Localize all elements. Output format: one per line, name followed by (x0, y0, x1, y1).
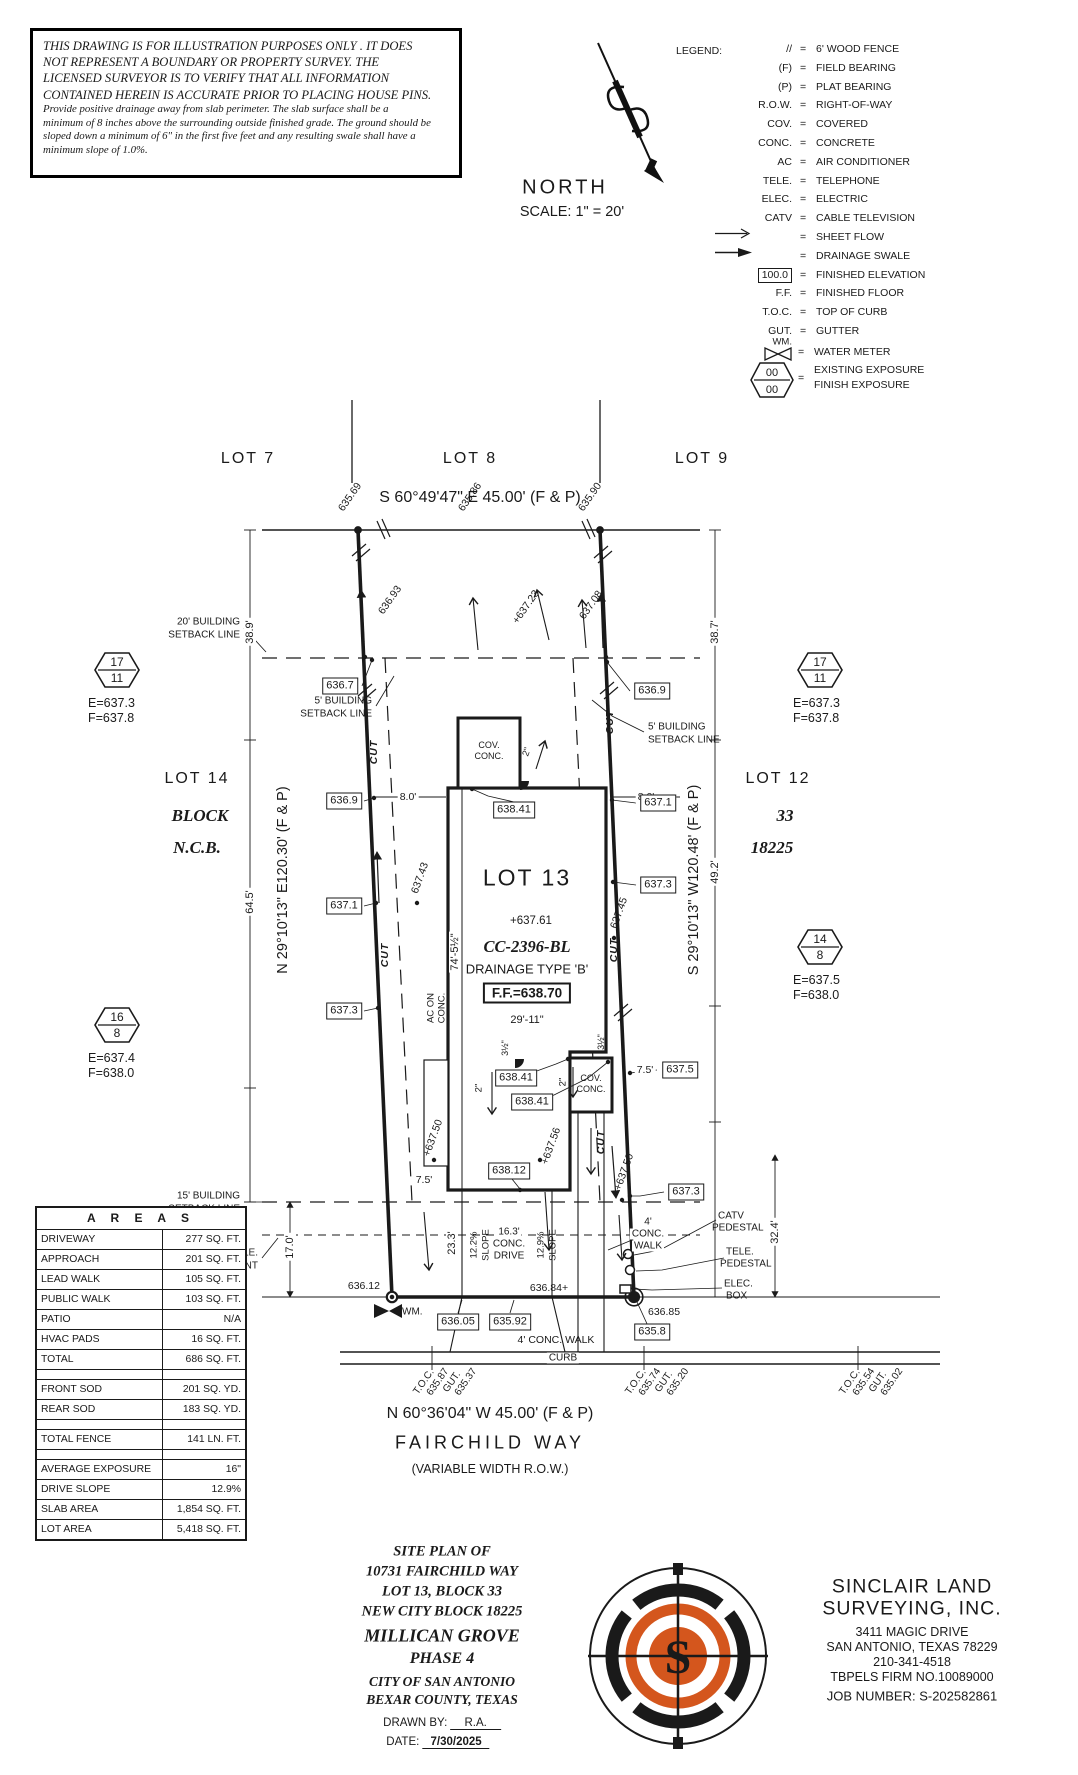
bearing-left: N 29°10'13" E120.30' (F & P) (275, 786, 291, 973)
legend-row: COV.=COVERED (714, 115, 1070, 134)
firm-address2: SAN ANTONIO, TEXAS 78229 (826, 1640, 997, 1654)
elevation-box: 637.1 (326, 898, 362, 915)
exposure-bottom-value: 00 (766, 384, 778, 396)
cov-conc-front-label2: CONC. (577, 1084, 606, 1094)
legend-exposure-desc2: FINISH EXPOSURE (814, 379, 910, 391)
legend-eq: = (800, 322, 806, 341)
tele-pedestal-symbol (626, 1266, 635, 1275)
areas-gap-row (37, 1450, 245, 1460)
legend-symbol: AC (714, 153, 792, 172)
legend-symbol: R.O.W. (714, 96, 792, 115)
legend-row: 100.0=FINISHED ELEVATION (714, 266, 1070, 285)
areas-row-value: 12.9% (163, 1480, 245, 1499)
areas-row-value: 201 SQ. YD. (163, 1380, 245, 1399)
legend-symbol: TELE. (714, 172, 792, 191)
slope-right-label: SLOPE (548, 1229, 559, 1261)
legend-symbol: (P) (714, 78, 792, 97)
dim-74-5: 74'-5½" (449, 931, 461, 972)
legend-symbol: F.F. (714, 284, 792, 303)
titleblock-line: NEW CITY BLOCK 18225 (362, 1604, 523, 1621)
catv-pedestal-label1: CATV (718, 1211, 744, 1222)
areas-row-label: HVAC PADS (37, 1330, 163, 1349)
legend-eq: = (798, 346, 804, 358)
areas-row-value: 16" (163, 1460, 245, 1479)
areas-gap-row (37, 1370, 245, 1380)
areas-row-label: REAR SOD (37, 1400, 163, 1419)
legend-row: CONC.=CONCRETE (714, 134, 1070, 153)
drainage-note-line: sloped down a minimum of 6" in the first… (43, 130, 449, 144)
drive-dim: 16.3' (496, 1227, 521, 1238)
subdivision-name: MILLICAN GROVE (364, 1626, 520, 1647)
areas-row: DRIVEWAY277 SQ. FT. (37, 1230, 245, 1250)
finish-exposure-value: F=638.0 (793, 988, 839, 1002)
legend-description: DRAINAGE SWALE (816, 247, 910, 266)
setback20-label2: SETBACK LINE (168, 630, 240, 641)
areas-row-label: LEAD WALK (37, 1270, 163, 1289)
areas-row-label: SLAB AREA (37, 1500, 163, 1519)
legend-wm-desc: WATER METER (814, 346, 890, 358)
exposure-top-value: 00 (766, 367, 778, 379)
dim-38-9: 38.9' (244, 618, 256, 646)
legend-description: RIGHT-OF-WAY (816, 96, 892, 115)
marker-value: 11 (814, 671, 826, 685)
lot12-label: LOT 12 (745, 770, 810, 788)
dim-29-11: 29'-11" (508, 1014, 545, 1026)
areas-row: PUBLIC WALK103 SQ. FT. (37, 1290, 245, 1310)
areas-row: HVAC PADS16 SQ. FT. (37, 1330, 245, 1350)
legend-symbol: (F) (714, 59, 792, 78)
legend-eq: = (800, 228, 806, 247)
elevation-box: 637.3 (668, 1184, 704, 1201)
elevation-box: 636.7 (322, 678, 358, 695)
wm-label: WM. (402, 1307, 423, 1318)
legend-description: AIR CONDITIONER (816, 153, 910, 172)
county-label: BEXAR COUNTY, TEXAS (366, 1692, 517, 1708)
areas-row-label: TOTAL (37, 1350, 163, 1369)
marker-value: 16 (110, 1010, 123, 1024)
legend-row: ELEC.=ELECTRIC (714, 190, 1070, 209)
curb-label: CURB (547, 1353, 579, 1364)
bearing-right: S 29°10'13" W120.48' (F & P) (686, 785, 702, 976)
legend-symbol: COV. (714, 115, 792, 134)
exposure-hexagon-icon: 00 00 (750, 362, 794, 398)
areas-row-value: 183 SQ. YD. (163, 1400, 245, 1419)
elevation-box: 635.8 (634, 1324, 670, 1341)
areas-row: TOTAL FENCE141 LN. FT. (37, 1430, 245, 1450)
areas-row-label: FRONT SOD (37, 1380, 163, 1399)
catv-pedestal-label2: PEDESTAL (712, 1223, 764, 1234)
legend-eq: = (800, 78, 806, 97)
disclaimer-box: THIS DRAWING IS FOR ILLUSTRATION PURPOSE… (30, 28, 462, 178)
drawn-by-label: DRAWN BY: (383, 1717, 447, 1729)
cov-conc-front-label1: COV. (580, 1073, 601, 1083)
scale-label: SCALE: 1" = 20' (520, 204, 624, 220)
firm-name-line1: SINCLAIR LAND (832, 1576, 992, 1599)
marker-value: 17 (110, 655, 123, 669)
curb (340, 1346, 940, 1370)
dim-8-0-left: 8.0' (398, 791, 419, 803)
disclaimer-line: NOT REPRESENT A BOUNDARY OR PROPERTY SUR… (43, 54, 449, 70)
areas-row-label: APPROACH (37, 1250, 163, 1269)
areas-table: A R E A S DRIVEWAY277 SQ. FT.APPROACH201… (35, 1206, 247, 1541)
drive-label2: DRIVE (492, 1251, 527, 1262)
spot-elevation: 636.12 (348, 1280, 380, 1292)
legend-row: R.O.W.=RIGHT-OF-WAY (714, 96, 1070, 115)
cov-conc-rear-label2: CONC. (475, 751, 504, 761)
legend-row: AC=AIR CONDITIONER (714, 153, 1070, 172)
legend-eq: = (800, 172, 806, 191)
legend-eq: = (800, 209, 806, 228)
legend-symbol: T.O.C. (714, 303, 792, 322)
drainage-note-line: minimum of 8 inches above the surroundin… (43, 117, 449, 131)
block-right-label: 33 (777, 806, 794, 826)
elevation-box: 638.41 (493, 802, 535, 819)
titleblock-line: LOT 13, BLOCK 33 (382, 1584, 502, 1601)
lot7-label: LOT 7 (221, 450, 275, 468)
cut-label: CUT (608, 938, 620, 963)
areas-row-value: 1,854 SQ. FT. (163, 1500, 245, 1519)
areas-row: PATION/A (37, 1310, 245, 1330)
sinclair-logo-icon: S (585, 1563, 771, 1749)
legend-eq: = (798, 372, 804, 384)
areas-row: LEAD WALK105 SQ. FT. (37, 1270, 245, 1290)
legend-eq: = (800, 303, 806, 322)
areas-row-value: 105 SQ. FT. (163, 1270, 245, 1289)
legend-exposure-desc1: EXISTING EXPOSURE (814, 364, 924, 376)
areas-row-value: 277 SQ. FT. (163, 1230, 245, 1249)
dim-7-5-left: 7.5' (414, 1174, 435, 1186)
ac-on-conc-label1: AC ON (426, 993, 437, 1023)
legend-row: F.F.=FINISHED FLOOR (714, 284, 1070, 303)
drainage-type-label: DRAINAGE TYPE 'B' (466, 962, 588, 977)
inch-label-2: 2" (474, 1084, 485, 1093)
phase-label: PHASE 4 (410, 1650, 474, 1668)
existing-exposure-value: E=637.4 (88, 1051, 135, 1065)
firm-name-line2: SURVEYING, INC. (822, 1598, 1001, 1621)
tele-pedestal-label2: PEDESTAL (720, 1259, 772, 1270)
legend-description: TOP OF CURB (816, 303, 887, 322)
areas-row: AVERAGE EXPOSURE16" (37, 1460, 245, 1480)
areas-row-label: DRIVEWAY (37, 1230, 163, 1249)
inch-label-3half: 3½" (596, 1034, 606, 1050)
elevation-box: 638.41 (495, 1070, 537, 1087)
plan-code-label: CC-2396-BL (483, 937, 570, 957)
walk-label-walk: WALK (632, 1241, 664, 1252)
areas-row: SLAB AREA1,854 SQ. FT. (37, 1500, 245, 1520)
areas-row: DRIVE SLOPE12.9% (37, 1480, 245, 1500)
water-meter-icon (764, 347, 792, 361)
legend-description: CONCRETE (816, 134, 875, 153)
legend-symbol: CATV (714, 209, 792, 228)
areas-row: LOT AREA5,418 SQ. FT. (37, 1520, 245, 1539)
titleblock-line: 10731 FAIRCHILD WAY (366, 1564, 518, 1581)
dim-38-7: 38.7' (709, 618, 721, 646)
marker-value: 17 (813, 655, 826, 669)
spot-elevation: 636.84+ (530, 1282, 568, 1294)
legend-eq: = (800, 59, 806, 78)
walk-label-4: 4' (642, 1217, 653, 1228)
lot14-label: LOT 14 (164, 770, 229, 788)
legend-symbol: // (714, 40, 792, 59)
date-label: DATE: (386, 1736, 419, 1748)
block-left-label: BLOCK (172, 806, 229, 826)
areas-row-label: LOT AREA (37, 1520, 163, 1539)
dim-32-4: 32.4' (769, 1218, 781, 1246)
finish-exposure-value: F=637.8 (88, 711, 134, 725)
slope-left-pct: 12.2% (469, 1232, 480, 1259)
legend-row: (F)=FIELD BEARING (714, 59, 1070, 78)
disclaimer-line: CONTAINED HEREIN IS ACCURATE PRIOR TO PL… (43, 87, 449, 103)
date-value: 7/30/2025 (423, 1736, 490, 1749)
finish-exposure-value: F=637.8 (793, 711, 839, 725)
elevation-box: 636.9 (634, 683, 670, 700)
legend-description: CABLE TELEVISION (816, 209, 915, 228)
areas-row-value: 201 SQ. FT. (163, 1250, 245, 1269)
legend-description: SHEET FLOW (816, 228, 884, 247)
drive-label1: CONC. (491, 1239, 527, 1250)
elec-box-label2: BOX (726, 1291, 747, 1302)
inch-label-2: 2" (558, 1078, 569, 1087)
cut-label: CUT (604, 710, 616, 735)
ac-on-conc-label2: CONC. (437, 993, 448, 1024)
slope-right-pct: 12.9% (536, 1232, 547, 1259)
dim-64-5: 64.5' (244, 888, 256, 916)
elevation-box: 637.3 (326, 1003, 362, 1020)
elevation-box: 637.3 (640, 877, 676, 894)
drawn-by-row: DRAWN BY: R.A. (383, 1717, 501, 1729)
legend-row: GUT.=GUTTER (714, 322, 1070, 341)
legend-eq: = (800, 134, 806, 153)
lot8-label: LOT 8 (443, 450, 497, 468)
public-walk-label: 4' CONC. WALK (518, 1334, 595, 1346)
legend-eq: = (800, 153, 806, 172)
areas-row-value: 5,418 SQ. FT. (163, 1520, 245, 1539)
legend-description: 6' WOOD FENCE (816, 40, 899, 59)
legend-eq: = (800, 284, 806, 303)
spot-elevation: 636.85 (648, 1306, 680, 1318)
cov-conc-rear-label1: COV. (478, 740, 499, 750)
areas-row: TOTAL686 SQ. FT. (37, 1350, 245, 1370)
legend-row: T.O.C.=TOP OF CURB (714, 303, 1070, 322)
legend-row: TELE.=TELEPHONE (714, 172, 1070, 191)
areas-row: APPROACH201 SQ. FT. (37, 1250, 245, 1270)
elevation-box: 638.12 (488, 1163, 530, 1180)
dim-7-5-right: 7.5' (635, 1064, 656, 1076)
ncb-right-label: 18225 (751, 838, 794, 858)
legend-row: =DRAINAGE SWALE (714, 247, 1070, 266)
marker-value: 14 (813, 932, 826, 946)
walk-label-conc: CONC. (630, 1229, 666, 1240)
legend-description: FINISHED ELEVATION (816, 266, 925, 285)
logo-monogram: S (665, 1631, 692, 1684)
existing-exposure-value: E=637.3 (793, 696, 840, 710)
disclaimer-line: THIS DRAWING IS FOR ILLUSTRATION PURPOSE… (43, 38, 449, 54)
drainage-note-line: Provide positive drainage away from slab… (43, 103, 449, 117)
disclaimer-line: LICENSED SURVEYOR IS TO VERIFY THAT ALL … (43, 70, 449, 86)
ncb-left-label: N.C.B. (173, 838, 221, 858)
areas-row: REAR SOD183 SQ. YD. (37, 1400, 245, 1420)
legend-row: =SHEET FLOW (714, 228, 1070, 247)
areas-row-value: N/A (163, 1310, 245, 1329)
legend-eq: = (800, 247, 806, 266)
dim-17-0: 17.0' (284, 1233, 296, 1261)
areas-row-value: 103 SQ. FT. (163, 1290, 245, 1309)
elevation-box: 636.9 (326, 793, 362, 810)
setback5-right-label1: 5' BUILDING (648, 722, 705, 733)
setback5-right-label2: SETBACK LINE (648, 735, 720, 746)
areas-row-label: PUBLIC WALK (37, 1290, 163, 1309)
legend-symbol: ELEC. (714, 190, 792, 209)
city-label: CITY OF SAN ANTONIO (369, 1674, 515, 1690)
legend-description: PLAT BEARING (816, 78, 891, 97)
inch-label-3half: 3½" (500, 1040, 510, 1056)
legend-eq: = (800, 96, 806, 115)
areas-row-value: 141 LN. FT. (163, 1430, 245, 1449)
dim-23-3: 23.3' (446, 1229, 458, 1257)
cut-label: CUT (595, 1130, 607, 1155)
street-name: FAIRCHILD WAY (395, 1433, 585, 1454)
elec-box-symbol (620, 1285, 631, 1293)
areas-row-label: TOTAL FENCE (37, 1430, 163, 1449)
elec-box-label1: ELEC. (724, 1279, 753, 1290)
lot9-label: LOT 9 (675, 450, 729, 468)
areas-row-label: AVERAGE EXPOSURE (37, 1460, 163, 1479)
areas-row-label: PATIO (37, 1310, 163, 1329)
setback20-label1: 20' BUILDING (177, 617, 240, 628)
areas-row: FRONT SOD201 SQ. YD. (37, 1380, 245, 1400)
legend-row: CATV=CABLE TELEVISION (714, 209, 1070, 228)
north-arrow-icon (540, 35, 700, 185)
areas-table-title: A R E A S (37, 1208, 245, 1230)
legend-symbol: CONC. (714, 134, 792, 153)
setback5-left-label2: SETBACK LINE (300, 709, 372, 720)
areas-row-value: 686 SQ. FT. (163, 1350, 245, 1369)
existing-exposure-value: E=637.3 (88, 696, 135, 710)
date-row: DATE: 7/30/2025 (386, 1736, 489, 1748)
legend-description: ELECTRIC (816, 190, 868, 209)
lot13-label: LOT 13 (483, 865, 571, 892)
firm-license: TBPELS FIRM NO.10089000 (830, 1670, 993, 1684)
legend-eq: = (800, 266, 806, 285)
existing-exposure-value: E=637.5 (793, 973, 840, 987)
slope-left-label: SLOPE (481, 1229, 492, 1261)
house-spot-elevation: +637.61 (510, 915, 552, 927)
cut-label: CUT (368, 740, 380, 765)
legend-row: (P)=PLAT BEARING (714, 78, 1070, 97)
finish-exposure-value: F=638.0 (88, 1066, 134, 1080)
finished-floor-label: F.F.=638.70 (483, 983, 571, 1004)
areas-gap-row (37, 1420, 245, 1430)
areas-row-label: DRIVE SLOPE (37, 1480, 163, 1499)
marker-value: 8 (817, 948, 824, 962)
site-plan-page: THIS DRAWING IS FOR ILLUSTRATION PURPOSE… (0, 0, 1078, 1775)
elevation-box: 638.41 (511, 1094, 553, 1111)
north-label: NORTH (522, 177, 608, 200)
bearing-bottom: N 60°36'04" W 45.00' (F & P) (387, 1405, 594, 1423)
marker-value: 8 (114, 1026, 121, 1040)
job-number: JOB NUMBER: S-202582861 (827, 1689, 998, 1704)
legend-eq: = (800, 115, 806, 134)
titleblock-line: SITE PLAN OF (393, 1544, 491, 1561)
tele-pedestal-label1: TELE. (726, 1247, 754, 1258)
areas-row-value: 16 SQ. FT. (163, 1330, 245, 1349)
marker-value: 11 (111, 671, 123, 685)
street-row-label: (VARIABLE WIDTH R.O.W.) (412, 1462, 569, 1476)
legend-description: TELEPHONE (816, 172, 880, 191)
drawn-by-value: R.A. (450, 1717, 500, 1730)
legend-description: GUTTER (816, 322, 859, 341)
legend-description: FIELD BEARING (816, 59, 896, 78)
firm-phone: 210-341-4518 (873, 1655, 951, 1669)
firm-address1: 3411 MAGIC DRIVE (855, 1625, 968, 1639)
legend-description: COVERED (816, 115, 868, 134)
elevation-box: 636.05 (437, 1314, 479, 1331)
legend-row: //=6' WOOD FENCE (714, 40, 1070, 59)
drainage-note-line: minimum slope of 1.0%. (43, 144, 449, 158)
elevation-box: 635.92 (489, 1314, 531, 1331)
setback5-left-label1: 5' BUILDING (315, 696, 372, 707)
legend-description: FINISHED FLOOR (816, 284, 904, 303)
dim-49-2: 49.2' (709, 858, 721, 886)
setback15-label1: 15' BUILDING (177, 1191, 240, 1202)
legend-eq: = (800, 190, 806, 209)
legend-eq: = (800, 40, 806, 59)
elevation-box: 637.5 (662, 1062, 698, 1079)
legend-wm-label: WM. (772, 337, 792, 348)
finished-elevation-box: 100.0 (758, 268, 792, 283)
legend-symbol: 100.0 (714, 266, 792, 285)
elevation-box: 637.1 (640, 795, 676, 812)
cut-label: CUT (379, 943, 391, 968)
